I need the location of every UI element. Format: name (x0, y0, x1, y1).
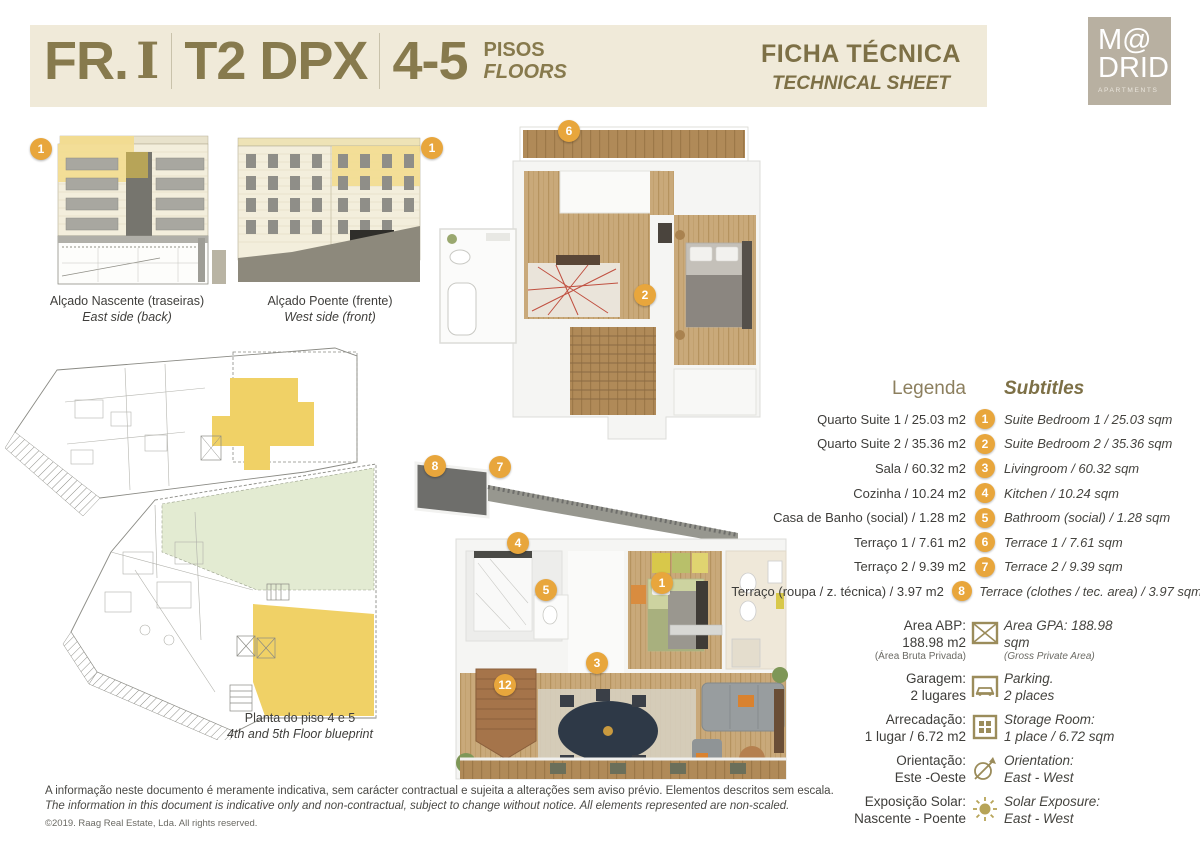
area-value-pt: 188.98 m2 (650, 634, 966, 651)
elevation-west-drawing: 1 (232, 130, 438, 292)
sheet-title-en: TECHNICAL SHEET (735, 73, 987, 95)
orientation-value-en: East - West (1004, 769, 1200, 786)
elevation-east-caption-pt: Alçado Nascente (traseiras) (50, 294, 204, 308)
copyright: ©2019. Raag Real Estate, Lda. All rights… (45, 816, 834, 831)
blueprint-plans (5, 340, 505, 740)
blueprint-caption: Planta do piso 4 e 5 4th and 5th Floor b… (200, 711, 400, 742)
legend-pt: Terraço 1 / 7.61 m2 (650, 535, 966, 550)
blueprint-caption-pt: Planta do piso 4 e 5 (245, 711, 356, 725)
parking-value-en: 2 places (1004, 687, 1200, 704)
legend-en: Terrace 1 / 7.61 sqm (1004, 535, 1123, 550)
legend-pt: Sala / 60.32 m2 (650, 461, 966, 476)
suite2-badge: 2 (634, 284, 656, 306)
sun-icon (970, 794, 1000, 824)
compass-icon (970, 753, 1000, 783)
legend-badge: 4 (975, 483, 995, 503)
legend-pt: Casa de Banho (social) / 1.28 m2 (650, 510, 966, 525)
storage-icon (970, 712, 1000, 742)
elevation-west-caption-pt: Alçado Poente (frente) (267, 294, 392, 308)
orientation-label-pt: Orientação: (650, 752, 966, 769)
logo-line1: M@ (1098, 27, 1171, 55)
legend-badge: 7 (975, 557, 995, 577)
legend-pt: Cozinha / 10.24 m2 (650, 486, 966, 501)
legend-badge: 1 (975, 409, 995, 429)
legend-en: Kitchen / 10.24 sqm (1004, 486, 1119, 501)
parking-label-pt: Garagem: (650, 670, 966, 687)
parking-icon (970, 671, 1000, 701)
blueprint-caption-en: 4th and 5th Floor blueprint (227, 727, 373, 741)
title-divider (379, 33, 380, 89)
unit-prefix: FR. (44, 34, 128, 88)
disclaimer-en: The information in this document is indi… (45, 799, 834, 814)
legend-badge: 3 (975, 458, 995, 478)
storage-label-pt: Arrecadação: (650, 711, 966, 728)
area-note-en: (Gross Private Area) (1004, 651, 1200, 663)
unit-title: FR.I T2 DPX 4-5 PISOS FLOORS (44, 33, 567, 89)
legend: Legenda Subtitles Quarto Suite 1 / 25.03… (650, 378, 1200, 604)
elevation-west-caption-en: West side (front) (284, 310, 375, 324)
logo-line2: DRID. (1098, 55, 1171, 83)
floors-label: FLOORS (484, 61, 567, 83)
floors-range: 4-5 (392, 34, 467, 88)
info-row-storage: Arrecadação: 1 lugar / 6.72 m2 Storage R… (650, 711, 1200, 745)
pisos-label: PISOS (484, 39, 545, 61)
terrace1-badge: 6 (558, 120, 580, 142)
livingroom-badge: 3 (586, 652, 608, 674)
sheet-title-block: FICHA TÉCNICA TECHNICAL SHEET (735, 40, 987, 95)
legend-badge: 5 (975, 508, 995, 528)
legend-en: Terrace (clothes / tec. area) / 3.97 sqm (979, 584, 1200, 599)
elevation-east-caption-en: East side (back) (82, 310, 172, 324)
legend-pt: Terraço (roupa / z. técnica) / 3.97 m2 (650, 584, 944, 599)
area-label-pt: Area ABP: (650, 617, 966, 634)
info-row-orientation: Orientação: Este -Oeste Orientation: Eas… (650, 752, 1200, 786)
kitchen-badge: 4 (507, 532, 529, 554)
legend-en: Suite Bedroom 2 / 35.36 sqm (1004, 436, 1172, 451)
disclaimer: A informação neste documento é meramente… (45, 784, 834, 831)
legend-badge: 8 (952, 581, 972, 601)
solar-value-en: East - West (1004, 810, 1200, 827)
parking-value-pt: 2 lugares (650, 687, 966, 704)
legend-row: Cozinha / 10.24 m2 4 Kitchen / 10.24 sqm (650, 481, 1200, 506)
elevation-east-drawing: 1 (38, 130, 230, 292)
orientation-label-en: Orientation: (1004, 752, 1200, 769)
legend-row: Terraço (roupa / z. técnica) / 3.97 m2 8… (650, 579, 1200, 604)
legend-header: Legenda Subtitles (650, 378, 1200, 400)
technical-sheet-page: FR.I T2 DPX 4-5 PISOS FLOORS FICHA TÉCNI… (0, 0, 1200, 848)
legend-pt: Terraço 2 / 9.39 m2 (650, 559, 966, 574)
legend-badge: 2 (975, 434, 995, 454)
area-icon (970, 618, 1000, 648)
info-row-area: Area ABP: 188.98 m2 (Área Bruta Privada)… (650, 617, 1200, 663)
elevation-west-caption: Alçado Poente (frente) West side (front) (235, 294, 425, 325)
elevation-east-caption: Alçado Nascente (traseiras) East side (b… (32, 294, 222, 325)
storage-value-pt: 1 lugar / 6.72 m2 (650, 728, 966, 745)
legend-en: Terrace 2 / 9.39 sqm (1004, 559, 1123, 574)
unit-type: T2 DPX (184, 34, 367, 88)
logo-line3: APARTMENTS (1098, 87, 1171, 94)
legend-title-pt: Legenda (650, 378, 966, 400)
legend-en: Bathroom (social) / 1.28 sqm (1004, 510, 1170, 525)
bathroom-social-badge: 5 (535, 579, 557, 601)
sheet-title-pt: FICHA TÉCNICA (735, 40, 987, 69)
elevation-east-badge: 1 (30, 138, 52, 160)
legend-row: Terraço 1 / 7.61 m2 6 Terrace 1 / 7.61 s… (650, 530, 1200, 555)
storage-value-en: 1 place / 6.72 sqm (1004, 728, 1200, 745)
legend-badge: 6 (975, 532, 995, 552)
legend-row: Sala / 60.32 m2 3 Livingroom / 60.32 sqm (650, 456, 1200, 481)
madrid-apartments-logo: M@ DRID. APARTMENTS (1088, 17, 1171, 105)
legend-en: Suite Bedroom 1 / 25.03 sqm (1004, 412, 1172, 427)
legend-en: Livingroom / 60.32 sqm (1004, 461, 1139, 476)
legend-row: Quarto Suite 2 / 35.36 m2 2 Suite Bedroo… (650, 432, 1200, 457)
solar-label-en: Solar Exposure: (1004, 793, 1200, 810)
legend-title-en: Subtitles (1004, 378, 1084, 400)
legend-row: Casa de Banho (social) / 1.28 m2 5 Bathr… (650, 505, 1200, 530)
area-label-en: Area GPA: 188.98 (1004, 617, 1200, 634)
legend-row: Terraço 2 / 9.39 m2 7 Terrace 2 / 9.39 s… (650, 555, 1200, 580)
info-row-parking: Garagem: 2 lugares Parking. 2 places (650, 670, 1200, 704)
legend-pt: Quarto Suite 1 / 25.03 m2 (650, 412, 966, 427)
legend-pt: Quarto Suite 2 / 35.36 m2 (650, 436, 966, 451)
legend-row: Quarto Suite 1 / 25.03 m2 1 Suite Bedroo… (650, 407, 1200, 432)
parking-label-en: Parking. (1004, 670, 1200, 687)
disclaimer-pt: A informação neste documento é meramente… (45, 784, 834, 799)
area-value-en: sqm (1004, 634, 1200, 651)
unit-letter: I (136, 36, 159, 86)
floors-label-block: PISOS FLOORS (484, 39, 567, 83)
area-note-pt: (Área Bruta Privada) (650, 651, 966, 663)
title-divider (171, 33, 172, 89)
storage-label-en: Storage Room: (1004, 711, 1200, 728)
